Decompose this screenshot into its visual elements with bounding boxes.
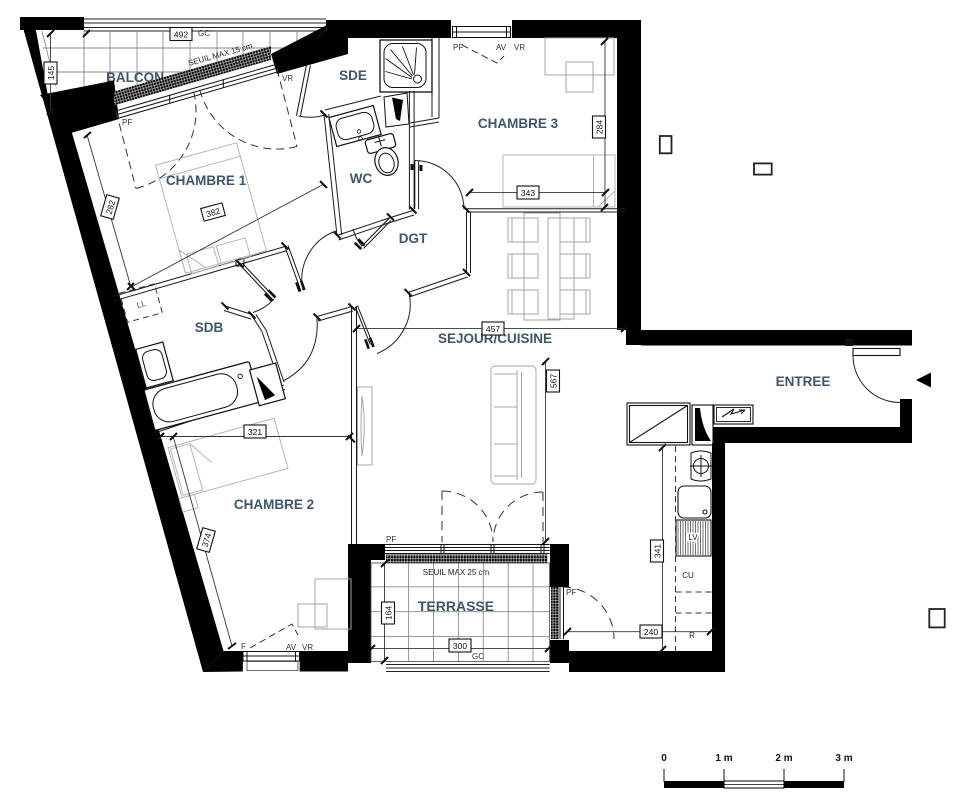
svg-text:DGT: DGT	[399, 231, 428, 246]
svg-text:492: 492	[174, 30, 188, 40]
svg-text:284: 284	[595, 120, 605, 134]
svg-text:343: 343	[521, 188, 535, 198]
svg-text:VR: VR	[282, 74, 293, 83]
svg-text:240: 240	[644, 627, 658, 637]
svg-text:ENTREE: ENTREE	[776, 374, 831, 389]
svg-text:VR: VR	[514, 43, 525, 52]
svg-text:2 m: 2 m	[775, 753, 792, 764]
svg-text:3 m: 3 m	[835, 753, 852, 764]
svg-text:CU: CU	[682, 571, 694, 580]
svg-text:CHAMBRE 3: CHAMBRE 3	[478, 116, 559, 131]
svg-text:R: R	[689, 631, 695, 640]
svg-text:VR: VR	[302, 643, 313, 652]
svg-text:PF: PF	[453, 43, 463, 52]
svg-text:SEUIL MAX 25 cm: SEUIL MAX 25 cm	[423, 568, 490, 577]
svg-text:WC: WC	[350, 171, 373, 186]
svg-text:SDB: SDB	[195, 320, 224, 335]
svg-text:F: F	[241, 642, 246, 651]
svg-text:1 m: 1 m	[715, 753, 732, 764]
svg-text:341: 341	[653, 544, 663, 558]
svg-text:300: 300	[453, 641, 467, 651]
svg-text:GC: GC	[198, 29, 210, 38]
svg-text:LV: LV	[688, 533, 698, 542]
svg-text:PF: PF	[122, 118, 132, 127]
svg-text:TERRASSE: TERRASSE	[418, 598, 494, 614]
svg-text:CHAMBRE 1: CHAMBRE 1	[166, 173, 247, 188]
svg-text:SDE: SDE	[339, 68, 367, 83]
svg-text:457: 457	[486, 324, 500, 334]
svg-text:0: 0	[661, 753, 667, 764]
svg-text:164: 164	[384, 606, 394, 620]
svg-text:CHAMBRE 2: CHAMBRE 2	[234, 497, 314, 512]
svg-text:PF: PF	[566, 588, 576, 597]
svg-text:AV: AV	[286, 643, 297, 652]
svg-text:145: 145	[46, 66, 56, 80]
svg-text:321: 321	[248, 427, 262, 437]
svg-text:AV: AV	[496, 43, 507, 52]
svg-text:567: 567	[549, 374, 559, 388]
svg-text:GC: GC	[472, 652, 484, 661]
svg-text:PF: PF	[386, 535, 396, 544]
